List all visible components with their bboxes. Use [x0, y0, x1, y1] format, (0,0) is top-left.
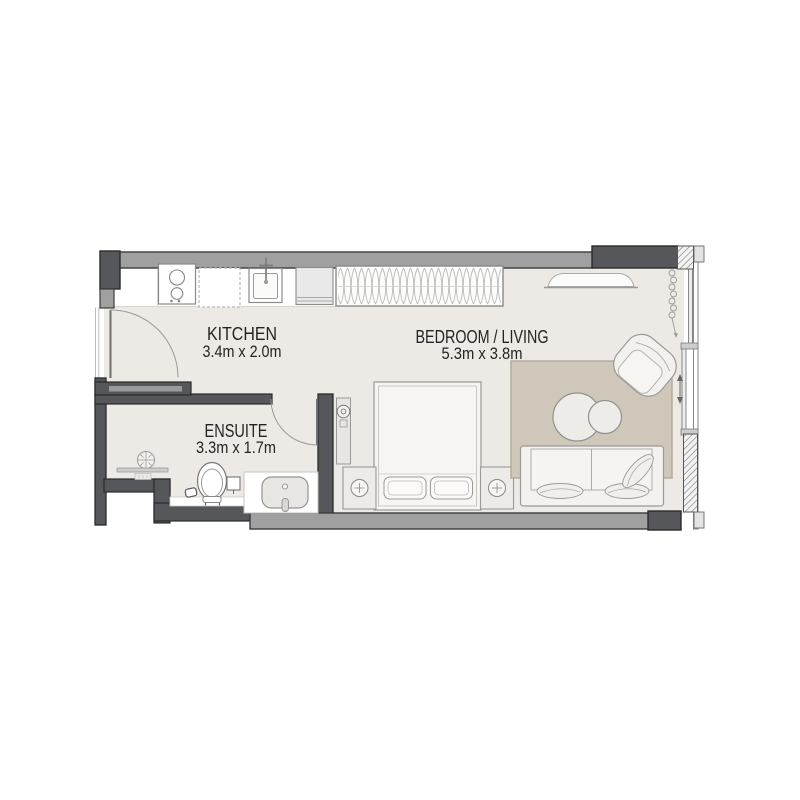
basin-faucet: [282, 499, 289, 512]
pillow-left: [384, 477, 426, 499]
column-hatch-top: [678, 246, 694, 269]
appliance-icon: [296, 268, 333, 305]
counter-dashed-unit: [199, 268, 240, 307]
nightstand-right: [481, 467, 514, 509]
pillow-right: [431, 477, 473, 499]
bedroom-living-dimensions: 5.3m x 3.8m: [442, 345, 523, 363]
bottom-right-wall-block: [648, 511, 681, 530]
sofa: [521, 446, 664, 506]
vanity: [244, 472, 318, 513]
ensuite-dimensions: 3.3m x 1.7m: [196, 439, 276, 457]
balustrade-hatch: [684, 434, 698, 512]
wardrobe: [336, 266, 503, 306]
ensuite-label: ENSUITE: [205, 421, 268, 441]
floor-plan-drawing: KITCHEN 3.4m x 2.0m BEDROOM / LIVING 5.3…: [0, 0, 800, 800]
floor-plan-page: KITCHEN 3.4m x 2.0m BEDROOM / LIVING 5.3…: [0, 0, 800, 800]
bed: [374, 382, 481, 510]
cooktop-icon: [159, 264, 196, 304]
wall-mounted-unit: [337, 398, 351, 464]
bedroom-living-label: BEDROOM / LIVING: [416, 327, 549, 347]
sofa-cushion-left: [537, 484, 583, 499]
nightstand-left: [343, 467, 376, 509]
kitchen-dimensions: 3.4m x 2.0m: [203, 343, 282, 361]
window-end-cap-top: [694, 246, 704, 262]
entry-jamb: [100, 289, 114, 308]
ensuite-east-wall: [318, 394, 333, 522]
shower-drain-icon: [138, 452, 155, 469]
window-panel-inner: [682, 345, 686, 433]
bottom-wall: [250, 513, 650, 529]
ceiling-light-icon: [544, 274, 638, 288]
top-right-wall-block: [592, 246, 678, 268]
entry-threshold: [96, 308, 99, 378]
kitchen-label: KITCHEN: [207, 324, 277, 344]
waste-bin-icon: [185, 487, 197, 497]
window-panel-outer: [689, 267, 693, 348]
top-left-wall-block: [100, 251, 120, 289]
window-end-cap-bottom: [694, 512, 704, 528]
